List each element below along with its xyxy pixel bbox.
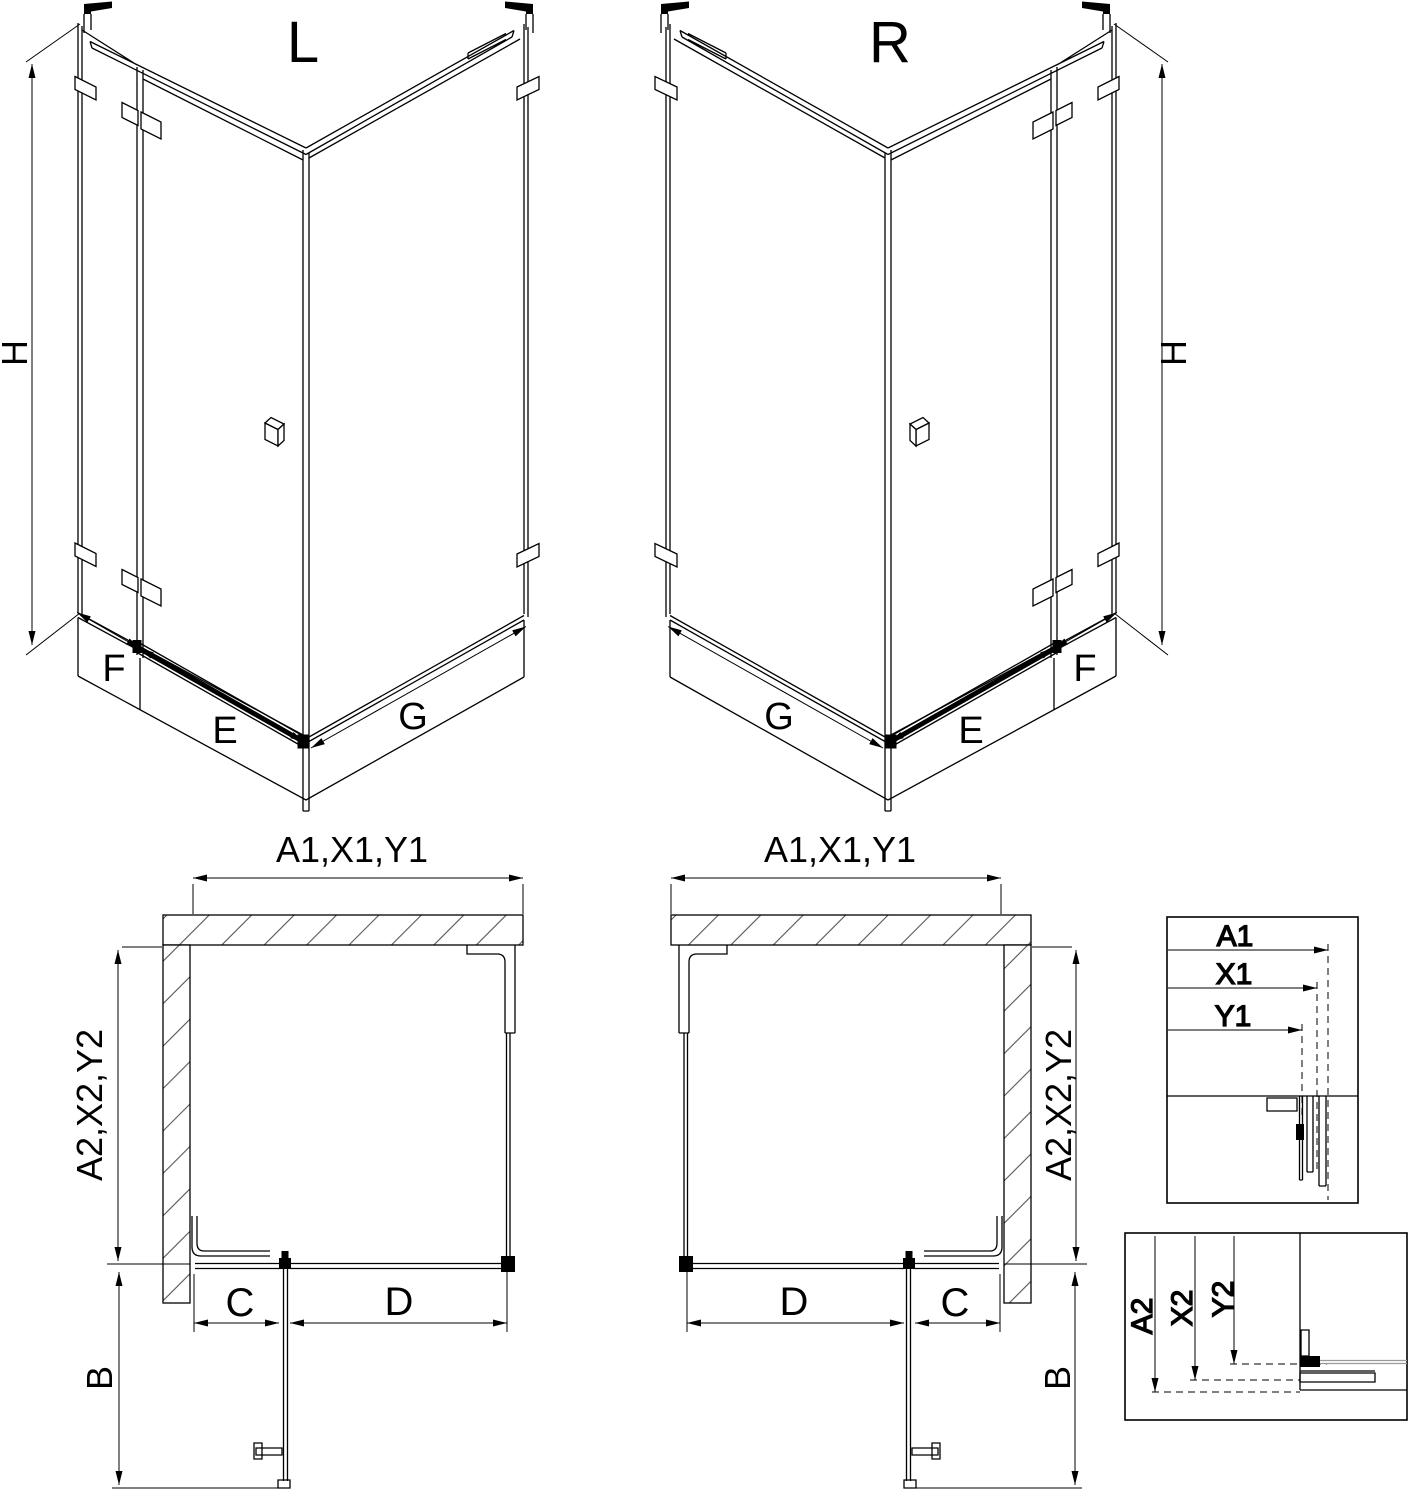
technical-drawing-page: L H F E G R H G E F A1,X1,Y1 A2,X2,Y2 C … [0, 0, 1416, 1497]
height-dim-label-left: H [0, 340, 35, 366]
door-dim-label-right: E [958, 710, 983, 752]
side-panel-dim-label-left: G [398, 696, 428, 738]
front-panel-dim-label: D [780, 1280, 809, 1324]
glass-clamp [1296, 1124, 1304, 1140]
door-dim-label-left: E [212, 710, 237, 752]
door-swing-dim-label: B [79, 1366, 120, 1390]
detail-dim-a2: A2 [1126, 1298, 1159, 1335]
fixed-side-dim-label-left: F [102, 648, 125, 690]
door-swing-dim-label: B [1037, 1366, 1078, 1390]
glass-clamp [1300, 1356, 1320, 1367]
variant-title-right: R [869, 10, 911, 75]
detail-dim-y1: Y1 [1215, 1000, 1252, 1033]
detail-dim-a1: A1 [1217, 920, 1254, 953]
detail-dim-y2: Y2 [1207, 1281, 1240, 1318]
shower-enclosure-diagram: L H F E G R H G E F A1,X1,Y1 A2,X2,Y2 C … [0, 0, 1416, 1497]
height-dim-label-right: H [1153, 340, 1194, 366]
width-dim-label: A1,X1,Y1 [764, 829, 916, 870]
front-panel-dim-label: D [385, 1280, 414, 1324]
wall-section-side [1004, 945, 1031, 1303]
width-dim-label: A1,X1,Y1 [276, 829, 428, 870]
detail-dim-x2: X2 [1166, 1290, 1199, 1327]
variant-title-left: L [287, 10, 319, 75]
wall-section-side [163, 945, 190, 1303]
depth-dim-label: A2,X2,Y2 [1038, 1029, 1079, 1181]
depth-dim-label: A2,X2,Y2 [69, 1029, 110, 1181]
door-opening-dim-label: C [226, 1281, 255, 1325]
fixed-side-dim-label-right: F [1073, 648, 1096, 690]
wall-section-top [671, 915, 1031, 945]
door-opening-dim-label: C [941, 1281, 970, 1325]
detail-dim-x1: X1 [1216, 958, 1253, 991]
wall-section-top [163, 915, 523, 945]
side-panel-dim-label-right: G [764, 696, 794, 738]
